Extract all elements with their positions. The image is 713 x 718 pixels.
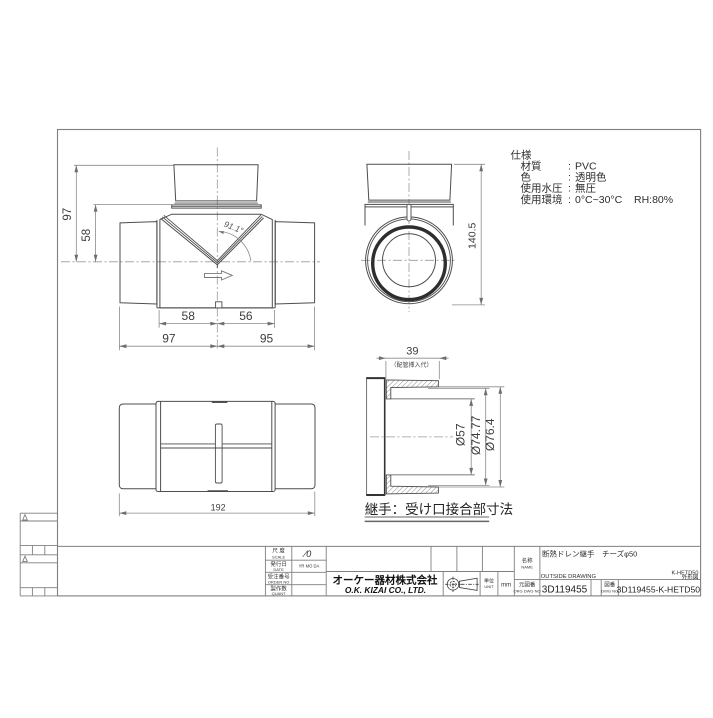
svg-text:Ø57: Ø57 [454,423,468,446]
svg-text:QUANT: QUANT [272,591,287,596]
svg-text:UNIT: UNIT [484,584,494,589]
svg-text:使用水圧: 使用水圧 [521,182,563,195]
svg-text:95: 95 [260,332,274,346]
svg-text:無圧: 無圧 [575,182,596,195]
svg-text:継手：受け口接合部寸法: 継手：受け口接合部寸法 [365,501,514,517]
svg-text:元図番: 元図番 [519,582,536,589]
svg-text:58: 58 [81,229,93,242]
svg-text:56: 56 [239,309,253,323]
svg-text:OUTSIDE DRAWING: OUTSIDE DRAWING [541,574,597,580]
svg-text:O.K. KIZAI CO., LTD.: O.K. KIZAI CO., LTD. [345,585,426,595]
svg-text:0°C~30°C: 0°C~30°C [575,194,623,206]
svg-text:NAME: NAME [521,565,533,570]
svg-text:DATE: DATE [273,567,284,572]
svg-text::: : [568,183,571,195]
svg-text:（配管挿入代）: （配管挿入代） [390,361,432,369]
svg-text:RH:80%: RH:80% [634,194,673,206]
svg-text:mm: mm [501,583,511,589]
svg-text:ORG DWG NO: ORG DWG NO [514,589,541,594]
svg-text:YR MO DA: YR MO DA [299,564,320,569]
svg-text:外形図: 外形図 [682,573,699,581]
svg-text:Ø76.4: Ø76.4 [483,418,497,451]
svg-text:断熱ドレン継手 チーズφ50: 断熱ドレン継手 チーズφ50 [542,549,637,559]
svg-text:Ø74.77: Ø74.77 [469,415,483,455]
svg-text:97: 97 [162,332,176,346]
svg-text:尺 度: 尺 度 [272,547,285,555]
svg-text:58: 58 [182,309,196,323]
svg-text:図番: 図番 [604,582,616,589]
svg-text:39: 39 [406,346,418,358]
svg-text:140.5: 140.5 [467,223,479,249]
svg-text:97: 97 [62,208,74,221]
svg-text:使用環境: 使用環境 [521,193,563,206]
svg-text:3D119455-K-HETD50: 3D119455-K-HETD50 [617,584,701,594]
svg-text:名称: 名称 [522,557,534,565]
svg-text:ORDER NO: ORDER NO [268,579,290,584]
svg-text:SCALE: SCALE [272,555,285,560]
svg-text:3D119455: 3D119455 [542,585,588,596]
svg-text::: : [568,194,571,206]
svg-text:192: 192 [211,503,226,513]
